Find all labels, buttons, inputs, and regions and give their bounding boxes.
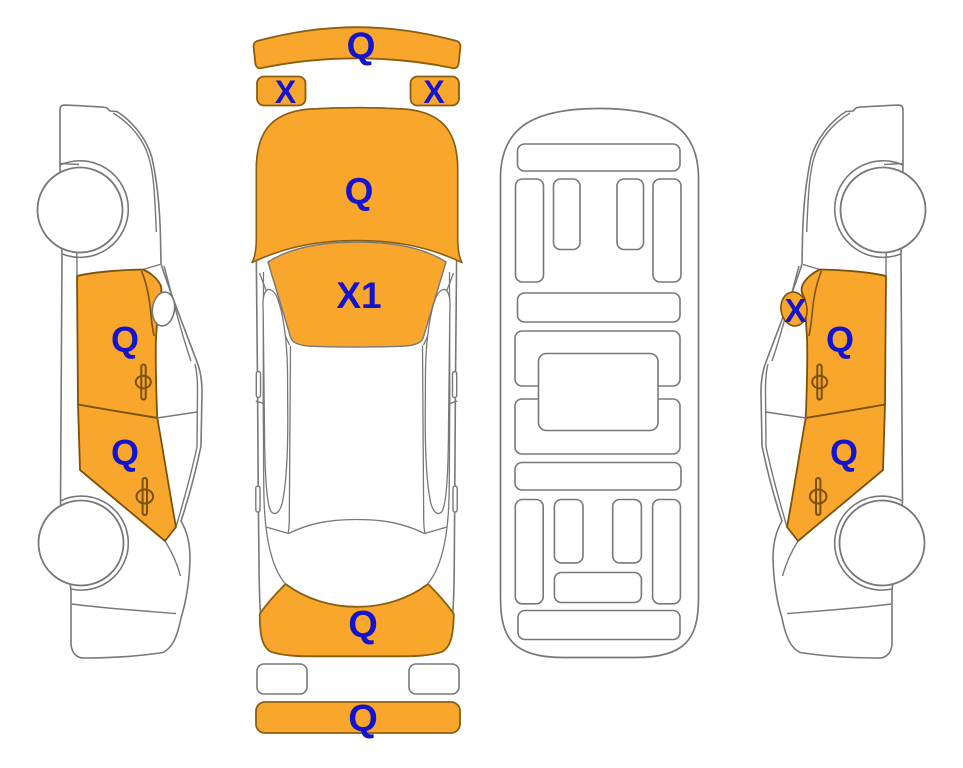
svg-text:Q: Q	[345, 171, 374, 212]
svg-text:X: X	[275, 74, 297, 110]
svg-text:Q: Q	[111, 432, 139, 473]
svg-text:X: X	[423, 74, 445, 110]
svg-text:Q: Q	[348, 698, 378, 740]
svg-text:Q: Q	[830, 432, 858, 473]
svg-text:Q: Q	[348, 604, 378, 646]
svg-text:Q: Q	[347, 25, 376, 66]
svg-text:Q: Q	[826, 319, 854, 360]
svg-text:X: X	[784, 292, 806, 329]
svg-text:Q: Q	[111, 319, 139, 360]
svg-text:X1: X1	[336, 275, 381, 316]
